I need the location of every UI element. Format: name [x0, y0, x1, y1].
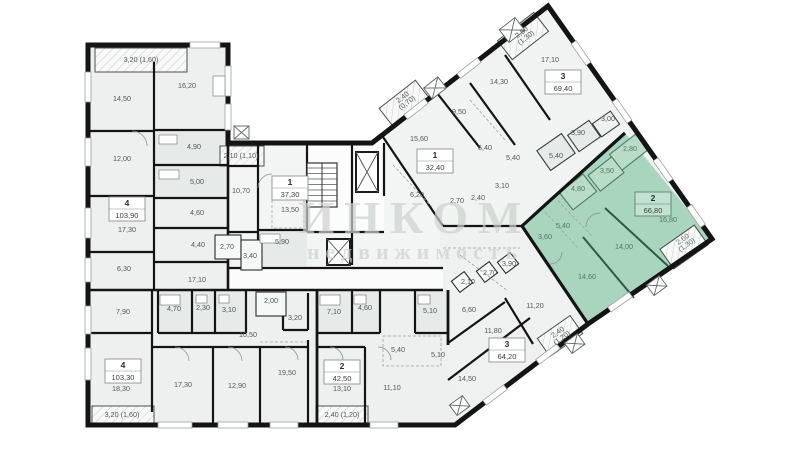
room-area-label: 5,40: [549, 151, 563, 160]
room-area-label: 14,60: [578, 272, 596, 281]
room-area-label: 17,30: [174, 380, 192, 389]
apartment-number: 4: [125, 198, 130, 208]
room-area-label: 12,90: [228, 381, 246, 390]
room-area-label: 4,60: [190, 208, 204, 217]
apartment-total-area: 103,30: [112, 373, 135, 382]
room-area-label: 3,10: [495, 181, 509, 190]
room-area-label: 4,70: [167, 304, 181, 313]
room-area-label: 7,90: [116, 307, 130, 316]
apartment-total-area: 103,90: [116, 211, 139, 220]
room-area-label: 4,40: [191, 240, 205, 249]
room-area-label: 5,00: [190, 177, 204, 186]
room-area-label: 2,10: [461, 277, 475, 286]
apartment-info-box-apt-2-green[interactable]: 266,80: [635, 192, 671, 216]
apartment-total-area: 32,40: [426, 163, 445, 172]
apartment-info-box-apt-2-bottom: 242,50: [324, 360, 360, 384]
room-area-label: 14,50: [458, 374, 476, 383]
room-area-label: 14,50: [113, 94, 131, 103]
room-area-label: 3,20 (1,60): [105, 410, 140, 419]
room-area-label: 7,10: [327, 307, 341, 316]
room-area-label: 5,90: [275, 237, 289, 246]
apartment-number: 3: [561, 71, 566, 81]
room-area-label: 17,10: [541, 55, 559, 64]
room-area-label: 6,30: [117, 264, 131, 273]
room-area-label: 10,50: [239, 330, 257, 339]
floor-plan: 3,20 (1,60)14,5016,2012,004,905,004,6017…: [0, 0, 800, 450]
room-area-label: 11,20: [526, 301, 543, 310]
room-area-label: 11,80: [484, 326, 501, 335]
room-area-label: 4,80: [571, 184, 585, 193]
room-area-label: 3,60: [538, 232, 552, 241]
room-area-label: 6,60: [462, 305, 476, 314]
room-area-label: 16,20: [178, 81, 196, 90]
apartment-total-area: 42,50: [333, 374, 352, 383]
room-area-label: 10,70: [232, 186, 250, 195]
apartment-number: 3: [505, 339, 510, 349]
room-area-label: 2,70: [220, 242, 234, 251]
apartment-number: 2: [340, 361, 345, 371]
watermark-subtitle: недвижимость: [307, 239, 523, 264]
apartment-number: 1: [288, 177, 293, 187]
apartment-total-area: 37,30: [281, 190, 300, 199]
room-area-label: 4,60: [358, 303, 372, 312]
corridor-fill: [228, 268, 443, 290]
apartment-info-box-apt-4-bottom: 4103,30: [105, 359, 141, 383]
room-area-label: 2,10 (1,10): [224, 151, 259, 160]
room-area-label: 2,80: [623, 144, 637, 153]
room-area-label: 19,50: [278, 368, 296, 377]
room-area-label: 11,10: [383, 383, 400, 392]
apartment-number: 1: [433, 150, 438, 160]
watermark: ИНКОМ недвижимость: [299, 192, 532, 264]
room-area-label: 5,40: [391, 345, 405, 354]
room-area-label: 13,10: [333, 384, 351, 393]
room-area-label: 3,20 (1,60): [124, 55, 159, 64]
apartment-total-area: 64,20: [498, 352, 517, 361]
room-area-label: 5,10: [431, 350, 445, 359]
room-area-label: 3,10: [222, 305, 236, 314]
room-area-label: 3,50: [600, 166, 614, 175]
room-area-label: 14,30: [490, 77, 508, 86]
apartment-info-box-apt-4-left: 4103,90: [109, 197, 145, 221]
room-area-label: 3,40: [243, 251, 257, 260]
apartment-info-box-apt-3-bottom: 364,20: [489, 338, 525, 362]
room-area-label: 2,70: [483, 268, 497, 277]
room-area-label: 3,90: [571, 128, 585, 137]
apartment-info-box-apt-1-right: 132,40: [417, 149, 453, 173]
room-area-label: 3,00: [601, 114, 615, 123]
apartment-total-area: 66,80: [644, 206, 663, 215]
room-area-label: 5,40: [506, 153, 520, 162]
apartment-info-box-apt-3-top: 369,40: [545, 70, 581, 94]
room-area-label: 4,90: [187, 142, 201, 151]
room-area-label: 17,10: [188, 275, 206, 284]
room-area-label: 15,60: [410, 134, 428, 143]
room-area-label: 5,10: [423, 306, 437, 315]
room-area-label: 2,40 (1,20): [325, 410, 360, 419]
apartment-number: 2: [651, 193, 656, 203]
room-area-label: 12,00: [113, 154, 131, 163]
room-area-label: 2,00: [264, 296, 278, 305]
apartment-number: 4: [121, 360, 126, 370]
room-area-label: 6,40: [478, 143, 492, 152]
room-area-label: 13,50: [281, 205, 299, 214]
watermark-brand: ИНКОМ: [299, 192, 532, 243]
room-area-label: 3,20: [288, 313, 302, 322]
apartment-total-area: 69,40: [554, 84, 573, 93]
room-area-label: 17,30: [118, 225, 136, 234]
room-area-label: 14,00: [615, 242, 633, 251]
room-area-label: 5,40: [556, 221, 570, 230]
room-area-label: 2,30: [196, 303, 210, 312]
room-area-label: 18,30: [112, 384, 130, 393]
room-area-label: 9,50: [452, 107, 466, 116]
